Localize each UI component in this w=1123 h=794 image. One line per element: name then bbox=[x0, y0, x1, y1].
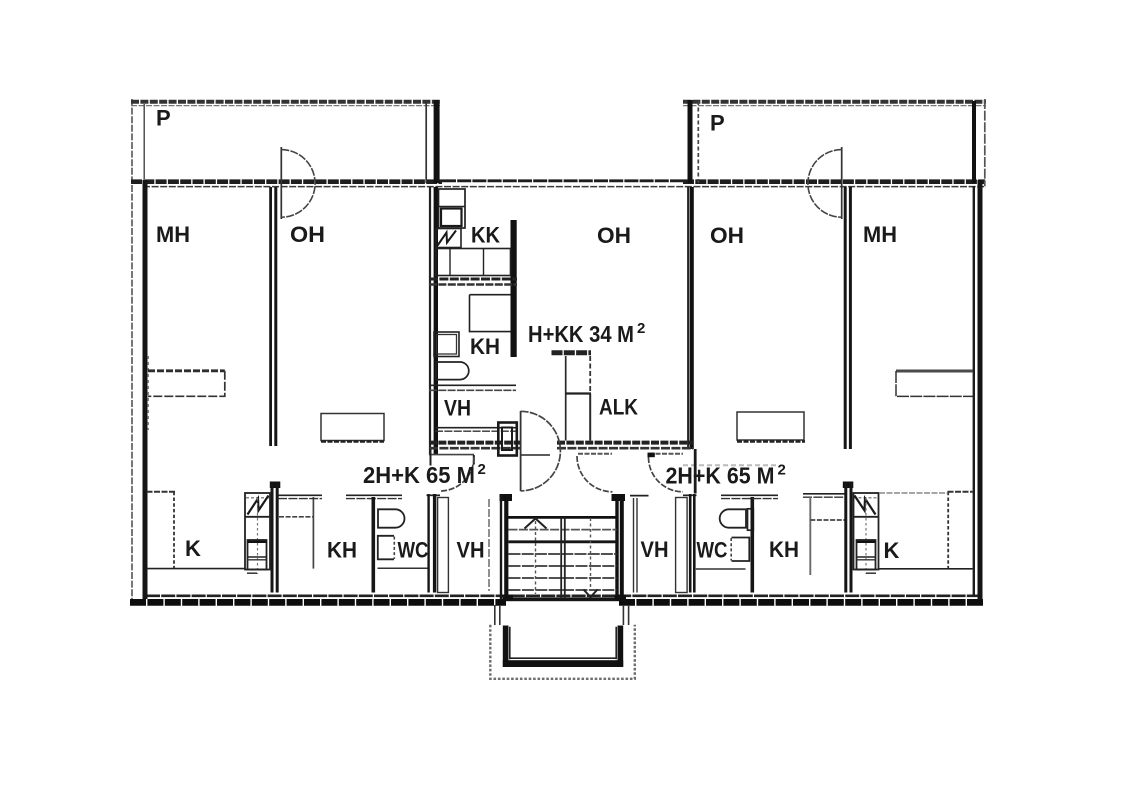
svg-text:OH: OH bbox=[597, 223, 631, 248]
svg-text:P: P bbox=[710, 111, 725, 136]
svg-text:H+KK 34 M: H+KK 34 M bbox=[528, 321, 634, 347]
svg-text:WC: WC bbox=[697, 538, 728, 563]
svg-text:2: 2 bbox=[478, 461, 486, 478]
svg-text:OH: OH bbox=[710, 223, 744, 248]
svg-text:ALK: ALK bbox=[599, 395, 638, 420]
svg-text:P: P bbox=[156, 106, 171, 131]
svg-text:K: K bbox=[884, 538, 900, 563]
svg-text:WC: WC bbox=[398, 538, 429, 563]
svg-text:2: 2 bbox=[637, 320, 645, 337]
svg-text:VH: VH bbox=[641, 537, 669, 562]
svg-text:2H+K 65 M: 2H+K 65 M bbox=[666, 463, 775, 489]
svg-text:KH: KH bbox=[327, 538, 357, 563]
svg-text:VH: VH bbox=[457, 538, 485, 563]
svg-text:2: 2 bbox=[778, 462, 786, 479]
svg-text:KH: KH bbox=[769, 537, 799, 562]
svg-text:K: K bbox=[185, 536, 201, 561]
svg-text:MH: MH bbox=[863, 222, 897, 247]
svg-text:VH: VH bbox=[444, 396, 471, 421]
svg-text:MH: MH bbox=[156, 222, 190, 247]
svg-text:KH: KH bbox=[470, 334, 500, 359]
svg-text:OH: OH bbox=[290, 222, 325, 247]
svg-text:KK: KK bbox=[471, 223, 500, 248]
svg-text:2H+K 65 M: 2H+K 65 M bbox=[363, 462, 475, 488]
